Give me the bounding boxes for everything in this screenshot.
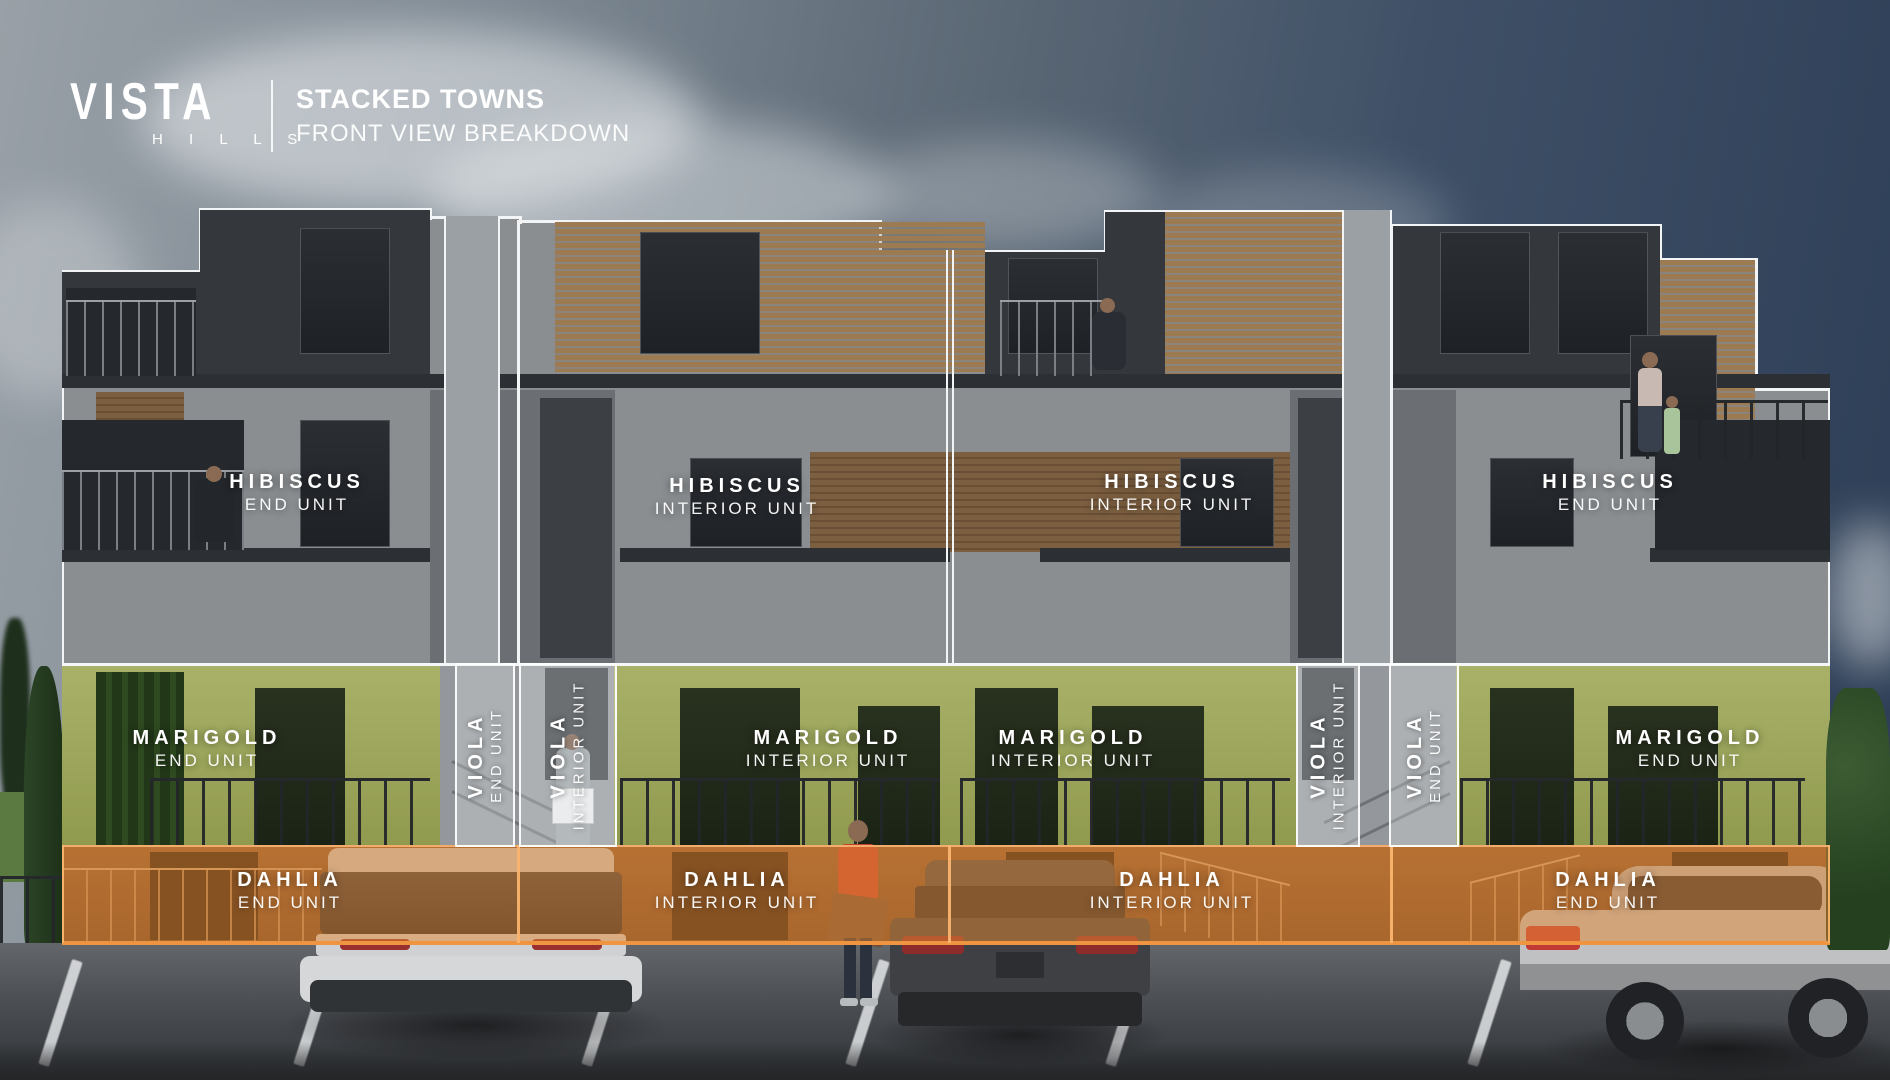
person-standing	[1638, 368, 1662, 452]
balcony-railing	[66, 300, 196, 376]
unit-name: MARIGOLD	[1616, 726, 1765, 750]
unit-name: HIBISCUS	[229, 470, 365, 494]
unit-type: INTERIOR UNIT	[571, 680, 589, 830]
pilaster	[444, 216, 500, 663]
unit-name: MARIGOLD	[133, 726, 282, 750]
hibiscus-label: HIBISCUS INTERIOR UNIT	[655, 474, 820, 519]
license-plate	[996, 952, 1044, 978]
unit-name: MARIGOLD	[746, 726, 911, 750]
unit-name: HIBISCUS	[1542, 470, 1678, 494]
unit-type: INTERIOR UNIT	[991, 750, 1156, 771]
person-head	[1100, 298, 1115, 313]
unit-name: DAHLIA	[237, 868, 343, 892]
unit-type: END UNIT	[1555, 892, 1661, 913]
floor-slab	[1650, 548, 1830, 562]
viola-unit-box: VIOLA INTERIOR UNIT	[519, 663, 617, 847]
person-leg	[860, 938, 872, 1002]
brand-logo-vista: VISTA	[70, 72, 218, 132]
viola-unit-box: VIOLA END UNIT	[455, 663, 515, 847]
unit-name: VIOLA	[548, 680, 571, 830]
hibiscus-label: HIBISCUS INTERIOR UNIT	[1090, 470, 1255, 515]
unit-name: VIOLA	[465, 708, 488, 803]
floor-slab	[620, 548, 950, 562]
unit-divider-line	[1390, 845, 1393, 943]
unit-type: INTERIOR UNIT	[1331, 680, 1349, 830]
dahlia-label: DAHLIA END UNIT	[1555, 868, 1661, 913]
viola-unit-box: VIOLA END UNIT	[1389, 663, 1459, 847]
dahlia-label: DAHLIA END UNIT	[237, 868, 343, 913]
unit-type: END UNIT	[133, 750, 282, 771]
unit-type: INTERIOR UNIT	[655, 498, 820, 519]
unit-name: MARIGOLD	[991, 726, 1156, 750]
unit-divider-line	[517, 845, 520, 943]
person-leg	[844, 938, 856, 1002]
balcony-railing	[150, 778, 430, 847]
child-standing	[1664, 408, 1680, 454]
unit-type: END UNIT	[1616, 750, 1765, 771]
window	[640, 232, 760, 354]
unit-type: INTERIOR UNIT	[1090, 494, 1255, 515]
band-edge	[1828, 845, 1830, 943]
viola-unit-box: VIOLA INTERIOR UNIT	[1296, 663, 1360, 847]
header-divider	[271, 80, 273, 152]
viola-label: VIOLA END UNIT	[465, 708, 506, 803]
balcony-railing	[1460, 778, 1805, 847]
window	[1440, 232, 1530, 354]
person-head	[206, 466, 222, 482]
marigold-label: MARIGOLD END UNIT	[133, 726, 282, 771]
marigold-label: MARIGOLD INTERIOR UNIT	[746, 726, 911, 771]
unit-type: INTERIOR UNIT	[746, 750, 911, 771]
dahlia-label: DAHLIA INTERIOR UNIT	[655, 868, 820, 913]
hibiscus-label: HIBISCUS END UNIT	[229, 470, 365, 515]
unit-type: END UNIT	[229, 494, 365, 515]
car-wheel	[1606, 982, 1684, 1060]
page-subtitle: FRONT VIEW BREAKDOWN	[296, 120, 630, 148]
unit-type: END UNIT	[488, 708, 506, 803]
hibiscus-label: HIBISCUS END UNIT	[1542, 470, 1678, 515]
dahlia-band-border	[62, 941, 1830, 945]
unit-type: INTERIOR UNIT	[655, 892, 820, 913]
car-bumper	[898, 992, 1142, 1026]
person-sitting	[1092, 312, 1126, 370]
person-shoe	[840, 998, 858, 1006]
unit-name: DAHLIA	[655, 868, 820, 892]
dahlia-label: DAHLIA INTERIOR UNIT	[1090, 868, 1255, 913]
unit-name: HIBISCUS	[655, 474, 820, 498]
pilaster	[1342, 210, 1392, 663]
wood-panel	[555, 222, 985, 372]
viola-label: VIOLA INTERIOR UNIT	[1308, 680, 1349, 830]
page-title: STACKED TOWNS	[296, 84, 545, 115]
viola-label: VIOLA END UNIT	[1404, 708, 1445, 803]
fence-railing	[0, 876, 64, 948]
brand-logo-hills: H I L L S	[152, 131, 308, 148]
car-bumper	[310, 980, 632, 1012]
unit-type: END UNIT	[1542, 494, 1678, 515]
unit-name: DAHLIA	[1555, 868, 1661, 892]
car-wheel	[1788, 978, 1868, 1058]
marigold-label: MARIGOLD END UNIT	[1616, 726, 1765, 771]
trees	[1826, 688, 1890, 950]
viola-label: VIOLA INTERIOR UNIT	[548, 680, 589, 830]
person-head	[848, 820, 868, 842]
unit-name: VIOLA	[1308, 680, 1331, 830]
balcony-railing	[1000, 300, 1105, 376]
person-head	[1666, 396, 1678, 408]
unit-name: DAHLIA	[1090, 868, 1255, 892]
unit-divider-line	[948, 845, 951, 943]
balcony-railing	[960, 778, 1290, 847]
unit-type: END UNIT	[237, 892, 343, 913]
band-edge	[62, 845, 64, 943]
unit-name: VIOLA	[1404, 708, 1427, 803]
unit-type: INTERIOR UNIT	[1090, 892, 1255, 913]
window	[300, 228, 390, 354]
balcony-railing	[620, 778, 940, 847]
unit-name: HIBISCUS	[1090, 470, 1255, 494]
stair-bay-door	[540, 398, 612, 658]
person-head	[1642, 352, 1658, 368]
floor-slab	[62, 548, 430, 562]
unit-type: END UNIT	[1427, 708, 1445, 803]
marigold-label: MARIGOLD INTERIOR UNIT	[991, 726, 1156, 771]
roof-outline	[1755, 258, 1758, 391]
